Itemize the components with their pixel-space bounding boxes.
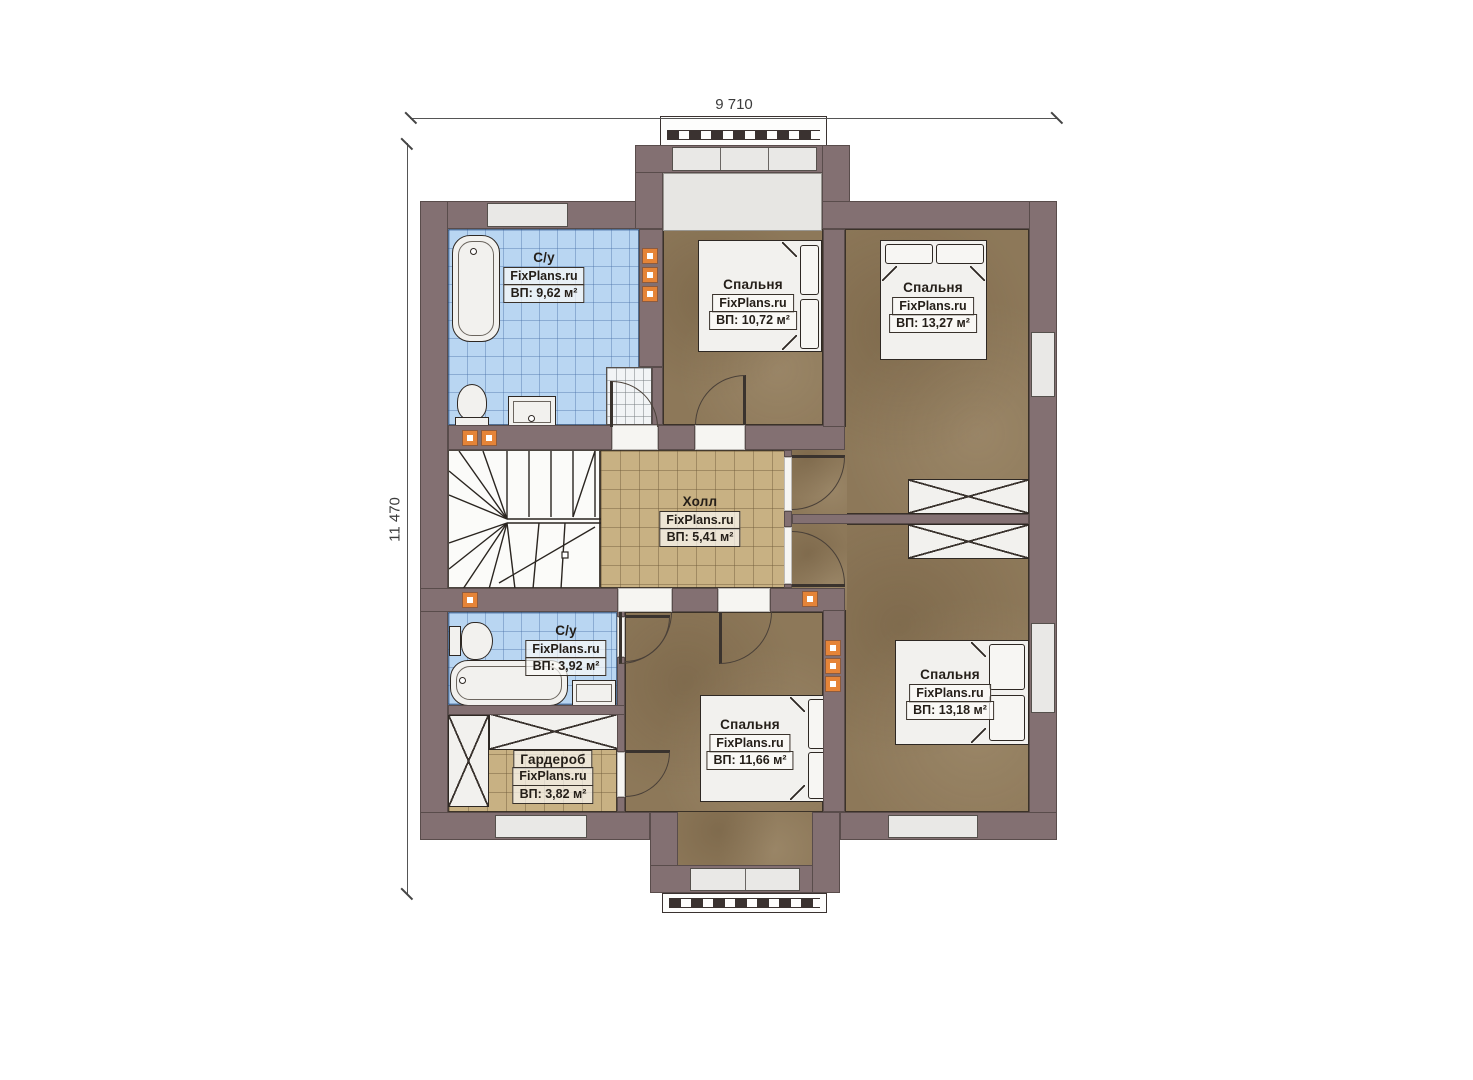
blanket-fold xyxy=(882,266,897,281)
window xyxy=(495,815,587,838)
dimension-height-label: 11 470 xyxy=(387,490,404,550)
exterior-wall xyxy=(420,201,448,840)
room-area: ВП: 5,41 м² xyxy=(660,528,741,547)
dimension-width: 9 710 xyxy=(410,96,1058,122)
dimension-line xyxy=(410,118,1058,119)
vent-grille xyxy=(463,431,477,445)
interior-wall xyxy=(672,588,718,612)
window-sill-bay-top xyxy=(663,173,822,231)
room-name: Спальня xyxy=(720,717,780,732)
exterior-wall xyxy=(812,812,840,893)
blanket-fold xyxy=(782,335,797,350)
toilet-bowl xyxy=(457,384,487,420)
room-watermark: FixPlans.ru xyxy=(712,294,793,313)
room-label: Спальня FixPlans.ru ВП: 10,72 м² xyxy=(709,277,797,330)
sink xyxy=(572,680,616,706)
exterior-wall xyxy=(1029,201,1057,840)
balcony-railing xyxy=(669,898,820,908)
interior-wall xyxy=(658,425,695,450)
bay-floor-bottom xyxy=(678,812,812,865)
window xyxy=(888,815,978,838)
toilet-bowl xyxy=(461,622,493,660)
room-area: ВП: 13,18 м² xyxy=(906,701,994,720)
vent-grille xyxy=(826,641,840,655)
sink-basin xyxy=(576,684,612,702)
room-name: С/у xyxy=(555,623,577,638)
interior-wall xyxy=(745,425,845,450)
interior-wall xyxy=(420,588,618,612)
blanket-fold xyxy=(790,785,805,800)
room-area: ВП: 9,62 м² xyxy=(504,284,585,303)
pillow xyxy=(989,695,1025,741)
room-area: ВП: 13,27 м² xyxy=(889,314,977,333)
room-area: ВП: 10,72 м² xyxy=(709,311,797,330)
balcony-bottom xyxy=(662,893,827,913)
wardrobe-cabinet xyxy=(908,524,1029,559)
staircase xyxy=(449,451,601,589)
room-label: Гардероб FixPlans.ru ВП: 3,82 м² xyxy=(512,750,593,804)
room-area: ВП: 3,82 м² xyxy=(513,785,594,804)
blanket-fold xyxy=(971,642,986,657)
room-label: С/у FixPlans.ru ВП: 3,92 м² xyxy=(525,623,606,676)
interior-wall xyxy=(784,511,792,527)
vent-grille xyxy=(463,593,477,607)
floor-plan-canvas: 9 710 11 470 xyxy=(0,0,1473,1080)
interior-wall xyxy=(617,797,625,812)
room-label: С/у FixPlans.ru ВП: 9,62 м² xyxy=(503,250,584,303)
exterior-wall xyxy=(822,201,1057,229)
blanket-fold xyxy=(970,266,985,281)
door-opening xyxy=(784,527,792,584)
bathtub-drain xyxy=(470,248,477,255)
door-opening xyxy=(718,588,770,612)
blanket-fold xyxy=(971,728,986,743)
vent-grille xyxy=(826,677,840,691)
room-watermark: FixPlans.ru xyxy=(503,267,584,286)
blanket-fold xyxy=(782,242,797,257)
door-opening xyxy=(617,752,625,797)
wardrobe-cabinet xyxy=(448,715,489,807)
room-name: Спальня xyxy=(920,667,980,682)
room-label: Спальня FixPlans.ru ВП: 13,18 м² xyxy=(906,667,994,720)
interior-wall xyxy=(448,705,625,715)
vent-grille xyxy=(826,659,840,673)
pillow xyxy=(800,299,819,349)
room-watermark: FixPlans.ru xyxy=(892,297,973,316)
room-watermark: FixPlans.ru xyxy=(525,640,606,659)
sink-drain xyxy=(528,415,535,422)
window xyxy=(1031,332,1055,397)
room-label: Спальня FixPlans.ru ВП: 11,66 м² xyxy=(706,717,793,770)
room-area: ВП: 11,66 м² xyxy=(706,751,793,770)
pillow xyxy=(800,245,819,295)
room-watermark: FixPlans.ru xyxy=(709,734,790,753)
interior-wall xyxy=(784,450,792,457)
room-label: Спальня FixPlans.ru ВП: 13,27 м² xyxy=(889,280,977,333)
wardrobe-cabinet xyxy=(489,713,620,750)
room-label: Холл FixPlans.ru ВП: 5,41 м² xyxy=(659,494,740,547)
vent-grille xyxy=(803,592,817,606)
vent-grille xyxy=(643,287,657,301)
dimension-height: 11 470 xyxy=(396,143,422,895)
room-name: Холл xyxy=(683,494,718,509)
door-leaf xyxy=(792,584,845,587)
pillow xyxy=(989,644,1025,690)
room-name: Гардероб xyxy=(513,750,592,769)
pillow xyxy=(936,244,984,264)
door-opening xyxy=(618,588,672,612)
toilet-tank xyxy=(449,626,461,656)
bathtub xyxy=(452,235,500,342)
bathtub-drain xyxy=(459,677,466,684)
room-name: Спальня xyxy=(723,277,783,292)
window-bay-bottom xyxy=(690,868,800,891)
dimension-line xyxy=(407,143,408,895)
vent-grille xyxy=(643,249,657,263)
pillow xyxy=(885,244,933,264)
room-watermark: FixPlans.ru xyxy=(512,767,593,786)
door-opening xyxy=(612,425,658,450)
sink xyxy=(508,396,556,428)
door-opening xyxy=(695,425,745,450)
interior-wall xyxy=(823,229,845,427)
window-bay-top xyxy=(672,147,817,171)
room-name: Спальня xyxy=(903,280,963,295)
window xyxy=(487,203,568,227)
window xyxy=(1031,623,1055,713)
room-watermark: FixPlans.ru xyxy=(909,684,990,703)
balcony-railing xyxy=(667,130,820,140)
room-watermark: FixPlans.ru xyxy=(659,511,740,530)
bathtub-basin xyxy=(458,241,494,336)
interior-wall xyxy=(784,584,792,588)
vent-grille xyxy=(643,268,657,282)
room-name: С/у xyxy=(533,250,555,265)
vent-grille xyxy=(482,431,496,445)
blanket-fold xyxy=(790,697,805,712)
room-area: ВП: 3,92 м² xyxy=(526,657,607,676)
room-floor-staircase xyxy=(448,450,600,588)
door-opening xyxy=(784,457,792,511)
wardrobe-cabinet xyxy=(908,479,1029,514)
dimension-width-label: 9 710 xyxy=(410,96,1058,113)
interior-wall xyxy=(792,514,1029,524)
